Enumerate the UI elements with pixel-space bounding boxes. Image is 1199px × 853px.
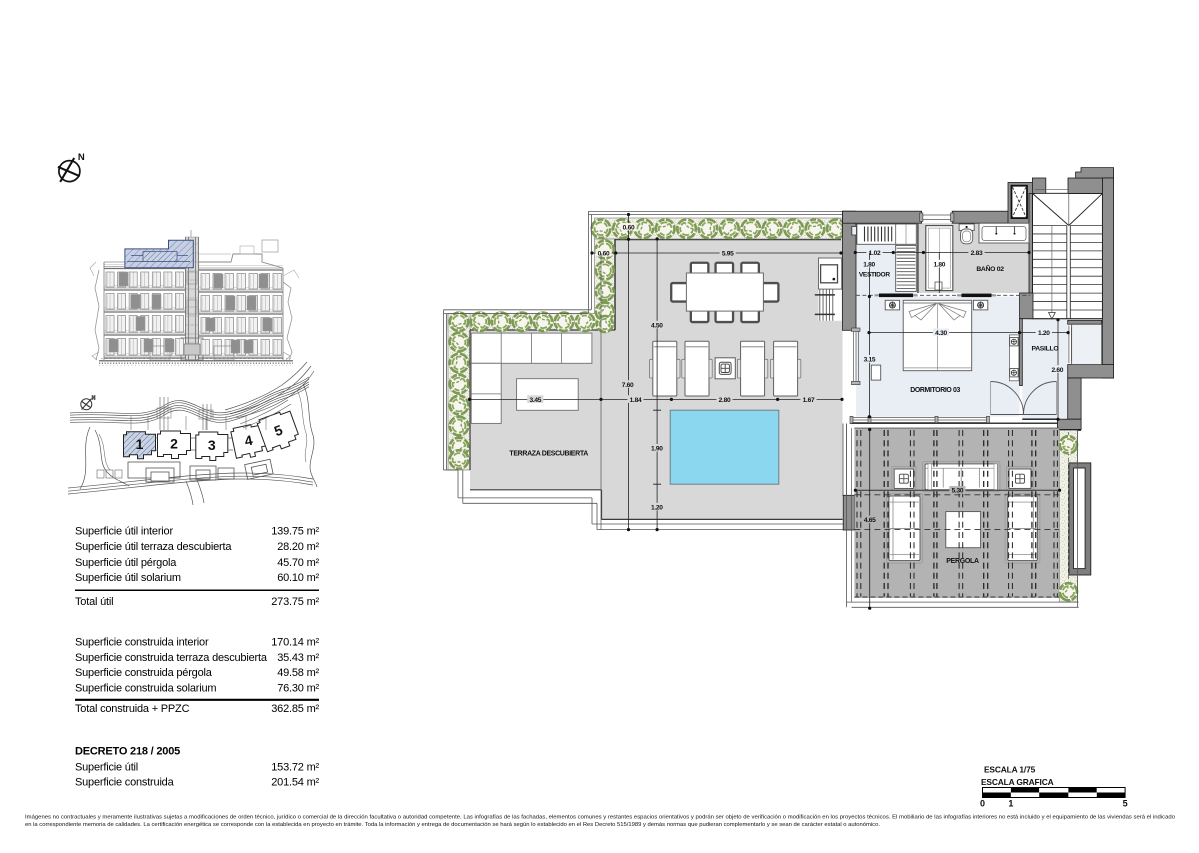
svg-text:49.58 m²: 49.58 m² [277,667,319,679]
svg-text:3: 3 [208,437,216,453]
svg-text:BAÑO 02: BAÑO 02 [976,264,1004,273]
svg-text:Superficie construida pérgola: Superficie construida pérgola [75,667,213,679]
svg-text:0.60: 0.60 [623,225,635,232]
svg-text:PASILLO: PASILLO [1031,346,1058,353]
svg-text:4.50: 4.50 [651,322,663,329]
svg-text:0: 0 [980,799,985,809]
svg-text:7.60: 7.60 [622,382,634,389]
svg-text:1.20: 1.20 [651,504,663,511]
svg-text:35.43 m²: 35.43 m² [277,652,319,664]
svg-text:Imágenes no contractuales y me: Imágenes no contractuales y meramente il… [25,815,1175,821]
svg-text:Superficie útil: Superficie útil [75,761,138,773]
svg-text:5.95: 5.95 [722,251,734,258]
svg-text:2: 2 [170,436,178,452]
svg-text:1.80: 1.80 [863,261,875,268]
svg-text:170.14 m²: 170.14 m² [271,636,319,648]
svg-text:201.54 m²: 201.54 m² [271,777,319,789]
svg-text:5.30: 5.30 [952,488,964,495]
svg-text:362.85 m²: 362.85 m² [271,703,319,715]
svg-text:Superficie útil terraza descub: Superficie útil terraza descubierta [75,541,232,553]
svg-text:4.30: 4.30 [935,330,947,337]
svg-text:1.80: 1.80 [933,261,945,268]
svg-text:Total útil: Total útil [75,596,113,608]
svg-text:PERGOLA: PERGOLA [946,558,979,565]
svg-text:Superficie útil pérgola: Superficie útil pérgola [75,557,177,569]
svg-text:139.75 m²: 139.75 m² [271,526,319,538]
svg-text:5: 5 [1123,799,1128,809]
svg-text:en la correspondiente memoria: en la correspondiente memoria de calidad… [25,822,880,828]
svg-text:TERRAZA DESCUBIERTA: TERRAZA DESCUBIERTA [509,450,588,457]
svg-text:Superficie construida: Superficie construida [75,777,175,789]
svg-text:DECRETO 218 / 2005: DECRETO 218 / 2005 [75,746,180,758]
svg-text:DORMITORIO 03: DORMITORIO 03 [910,387,960,394]
svg-text:60.10 m²: 60.10 m² [277,572,319,584]
svg-text:Superficie construida solarium: Superficie construida solarium [75,682,216,694]
svg-text:1.90: 1.90 [651,446,663,453]
svg-text:2.80: 2.80 [719,397,731,404]
svg-text:3.15: 3.15 [864,357,876,364]
svg-text:2.83: 2.83 [971,250,983,257]
svg-text:Total construida + PPZC: Total construida + PPZC [75,703,190,715]
svg-text:N: N [78,152,85,163]
svg-text:76.30 m²: 76.30 m² [277,682,319,694]
svg-text:N: N [92,396,96,402]
svg-text:4.65: 4.65 [864,517,876,524]
svg-text:1: 1 [136,436,144,452]
svg-text:Superficie construida terraza: Superficie construida terraza descubiert… [75,652,268,664]
svg-text:Superficie útil interior: Superficie útil interior [75,526,173,538]
svg-text:1.67: 1.67 [803,397,815,404]
svg-text:Superficie construida interior: Superficie construida interior [75,636,209,648]
svg-text:45.70 m²: 45.70 m² [277,557,319,569]
svg-text:ESCALA GRAFICA: ESCALA GRAFICA [981,777,1054,787]
svg-text:2.60: 2.60 [1051,367,1063,374]
svg-text:0.60: 0.60 [598,251,610,258]
svg-text:28.20 m²: 28.20 m² [277,541,319,553]
svg-text:3.45: 3.45 [529,397,541,404]
svg-text:1.20: 1.20 [1038,330,1050,337]
svg-text:VESTIDOR: VESTIDOR [859,272,890,279]
svg-text:1: 1 [1008,799,1013,809]
svg-text:273.75 m²: 273.75 m² [271,596,319,608]
svg-text:1.02: 1.02 [869,250,881,257]
svg-text:153.72 m²: 153.72 m² [271,761,319,773]
svg-text:1.84: 1.84 [630,397,642,404]
svg-text:Superficie útil solarium: Superficie útil solarium [75,572,181,584]
svg-text:ESCALA 1/75: ESCALA 1/75 [984,764,1036,774]
